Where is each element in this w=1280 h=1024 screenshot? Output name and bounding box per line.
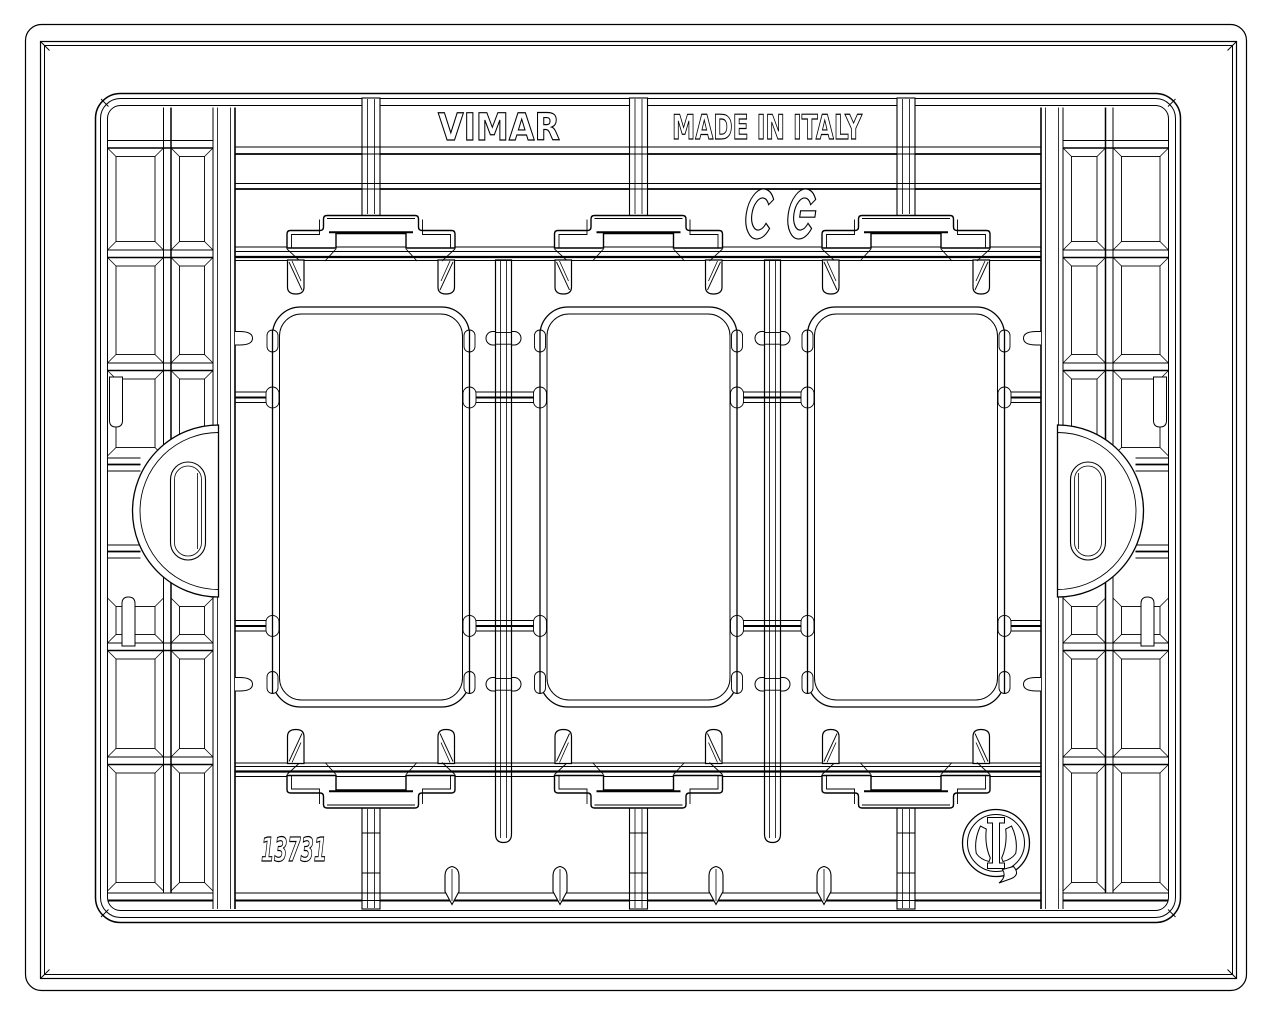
- panel-bevel: [1113, 371, 1122, 380]
- panel-bevel: [171, 598, 180, 607]
- panel-bevel: [1097, 258, 1106, 267]
- panel-bevel: [1113, 148, 1122, 157]
- panel-bevel: [1063, 148, 1072, 157]
- leg-chamfer: [406, 763, 417, 775]
- panel: [180, 659, 205, 749]
- origin-text: MADE IN ITALY: [672, 108, 862, 148]
- panel-bevel: [1097, 635, 1106, 644]
- brand-text: VIMAR: [438, 106, 560, 149]
- leg-chamfer: [674, 249, 685, 261]
- edge-bar: [1141, 597, 1154, 646]
- panel-bevel: [1113, 651, 1122, 660]
- panel-bevel: [1097, 765, 1106, 774]
- leg-chamfer: [674, 763, 685, 775]
- panel-bevel: [1063, 355, 1072, 364]
- module-openings: [266, 307, 1011, 707]
- panel-bevel: [171, 371, 180, 380]
- panel-bevel: [1113, 598, 1122, 607]
- panel: [1122, 157, 1161, 242]
- panel-bevel: [108, 749, 117, 758]
- module-outer: [273, 307, 470, 707]
- panel-bevel: [1097, 651, 1106, 660]
- panel-bevel: [205, 242, 214, 251]
- leg-chamfer: [593, 249, 604, 261]
- ce-letter-e-bar: [800, 211, 816, 217]
- rib-nub: [235, 332, 253, 346]
- panel-bevel: [108, 651, 117, 660]
- panel-bevel: [1063, 258, 1072, 267]
- panel-bevel: [155, 651, 164, 660]
- panel-bevel: [1097, 148, 1106, 157]
- ce-letter-c: [743, 189, 775, 239]
- leg-chamfer: [941, 249, 952, 261]
- panel-bevel: [1160, 242, 1169, 251]
- technical-drawing-page: VIMAR MADE IN ITALY 13731: [0, 0, 1280, 1024]
- panel-bevel: [1160, 148, 1169, 157]
- panel-bevel: [205, 258, 214, 267]
- panel: [116, 266, 155, 355]
- panel-bevel: [1113, 242, 1122, 251]
- strut: [765, 260, 781, 843]
- panel-bevel: [155, 371, 164, 380]
- clip-stem: [630, 98, 648, 216]
- panel-bevel: [205, 883, 214, 892]
- panel-bevel: [1113, 883, 1122, 892]
- panel-bevel: [1160, 598, 1169, 607]
- panel: [180, 266, 205, 355]
- imq-mark-icon: [963, 810, 1030, 884]
- panel-bevel: [155, 883, 164, 892]
- clip-stem: [897, 98, 915, 216]
- panel-bevel: [1097, 371, 1106, 380]
- leg-chamfer: [406, 249, 417, 261]
- leg-chamfer: [710, 763, 723, 775]
- panel-bevel: [171, 242, 180, 251]
- panel-bevel: [1160, 355, 1169, 364]
- leg-chamfer: [977, 249, 990, 261]
- panel-bevel: [108, 598, 117, 607]
- leg-chamfer: [325, 763, 336, 775]
- panel-bevel: [205, 598, 214, 607]
- panel-bevel: [108, 258, 117, 267]
- leg-chamfer: [287, 249, 300, 261]
- ce-mark-icon: [743, 189, 819, 239]
- panel-bevel: [1063, 765, 1072, 774]
- panel-bevel: [1063, 242, 1072, 251]
- panel-bevel: [205, 371, 214, 380]
- panel-bevel: [171, 148, 180, 157]
- panel-bevel: [1063, 635, 1072, 644]
- panel: [1072, 266, 1098, 355]
- panel-bevel: [108, 635, 117, 644]
- panel: [1072, 607, 1098, 635]
- panel: [180, 157, 205, 242]
- panel-bevel: [171, 651, 180, 660]
- panel-bevel: [155, 242, 164, 251]
- panel-bevel: [108, 242, 117, 251]
- panel-bevel: [108, 355, 117, 364]
- rib-nub: [1024, 332, 1042, 346]
- panel-bevel: [205, 148, 214, 157]
- module-outer: [808, 307, 1005, 707]
- imq-left-wedge: [976, 826, 991, 862]
- edge-bar: [110, 377, 123, 427]
- panel-bevel: [1113, 765, 1122, 774]
- panel-bevel: [1063, 371, 1072, 380]
- leg-chamfer: [977, 763, 990, 775]
- imq-right-wedge: [1002, 826, 1017, 862]
- panel-bevel: [1097, 242, 1106, 251]
- panel-bevel: [1160, 883, 1169, 892]
- rib-nub: [1024, 678, 1042, 692]
- leg-chamfer: [822, 763, 835, 775]
- panel: [1122, 266, 1161, 355]
- leg-chamfer: [442, 249, 455, 261]
- panel: [1122, 773, 1161, 883]
- leg-chamfer: [555, 249, 568, 261]
- clip-stem: [362, 808, 380, 909]
- panel: [1122, 659, 1161, 749]
- panel-bevel: [1113, 635, 1122, 644]
- leg-chamfer: [941, 763, 952, 775]
- clip-stem: [362, 98, 380, 216]
- panel: [116, 773, 155, 883]
- leg-chamfer: [710, 249, 723, 261]
- panel-bevel: [155, 598, 164, 607]
- panel-bevel: [205, 765, 214, 774]
- panel-bevel: [1160, 448, 1169, 457]
- panel-bevel: [205, 635, 214, 644]
- panel: [1072, 659, 1098, 749]
- leg-chamfer: [555, 763, 568, 775]
- edge-bar: [1154, 377, 1167, 427]
- panel: [180, 607, 205, 635]
- panel-bevel: [108, 148, 117, 157]
- panel-bevel: [171, 258, 180, 267]
- panel: [116, 157, 155, 242]
- panel: [1072, 773, 1098, 883]
- leg-chamfer: [325, 249, 336, 261]
- panel-bevel: [171, 355, 180, 364]
- panel-bevel: [171, 765, 180, 774]
- module-outer: [540, 307, 737, 707]
- panel-bevel: [1063, 598, 1072, 607]
- panel-bevel: [205, 749, 214, 758]
- rib-nub: [235, 678, 253, 692]
- panel: [180, 773, 205, 883]
- panel-bevel: [155, 258, 164, 267]
- panel-bevel: [205, 651, 214, 660]
- panel-bevel: [1160, 635, 1169, 644]
- leg-chamfer: [860, 249, 871, 261]
- panel-bevel: [1160, 258, 1169, 267]
- imq-i-beam: [988, 818, 1005, 869]
- panel-bevel: [171, 883, 180, 892]
- part-number-text: 13731: [261, 830, 327, 869]
- edge-bar: [122, 597, 135, 646]
- panel-bevel: [1113, 749, 1122, 758]
- panel-bevel: [108, 765, 117, 774]
- strut: [496, 260, 512, 843]
- left-tab-slot: [171, 462, 206, 560]
- panel-bevel: [1063, 651, 1072, 660]
- panel-bevel: [1113, 258, 1122, 267]
- panel-bevel: [1063, 883, 1072, 892]
- panel-bevel: [1097, 598, 1106, 607]
- panel-bevel: [155, 765, 164, 774]
- clip-stem: [897, 808, 915, 909]
- clip-stem: [630, 808, 648, 909]
- panel-bevel: [1097, 883, 1106, 892]
- panel-bevel: [1160, 749, 1169, 758]
- panel-bevel: [205, 355, 214, 364]
- panel-bevel: [1097, 749, 1106, 758]
- leg-chamfer: [593, 763, 604, 775]
- panel-bevel: [1160, 651, 1169, 660]
- mounting-frame-rear-drawing: VIMAR MADE IN ITALY 13731: [0, 0, 1280, 1024]
- panel-bevel: [108, 448, 117, 457]
- panel-bevel: [155, 148, 164, 157]
- leg-chamfer: [860, 763, 871, 775]
- panel-bevel: [171, 635, 180, 644]
- right-tab-slot: [1071, 462, 1106, 560]
- leg-chamfer: [442, 763, 455, 775]
- panel: [116, 659, 155, 749]
- panel-bevel: [171, 749, 180, 758]
- leg-chamfer: [822, 249, 835, 261]
- panel-bevel: [1063, 749, 1072, 758]
- panel-bevel: [1113, 355, 1122, 364]
- panel-bevel: [1160, 765, 1169, 774]
- panel-bevel: [155, 355, 164, 364]
- leg-chamfer: [287, 763, 300, 775]
- panel-bevel: [155, 635, 164, 644]
- panel-bevel: [108, 883, 117, 892]
- panel-bevel: [1097, 355, 1106, 364]
- panel: [1072, 157, 1098, 242]
- panel-bevel: [155, 749, 164, 758]
